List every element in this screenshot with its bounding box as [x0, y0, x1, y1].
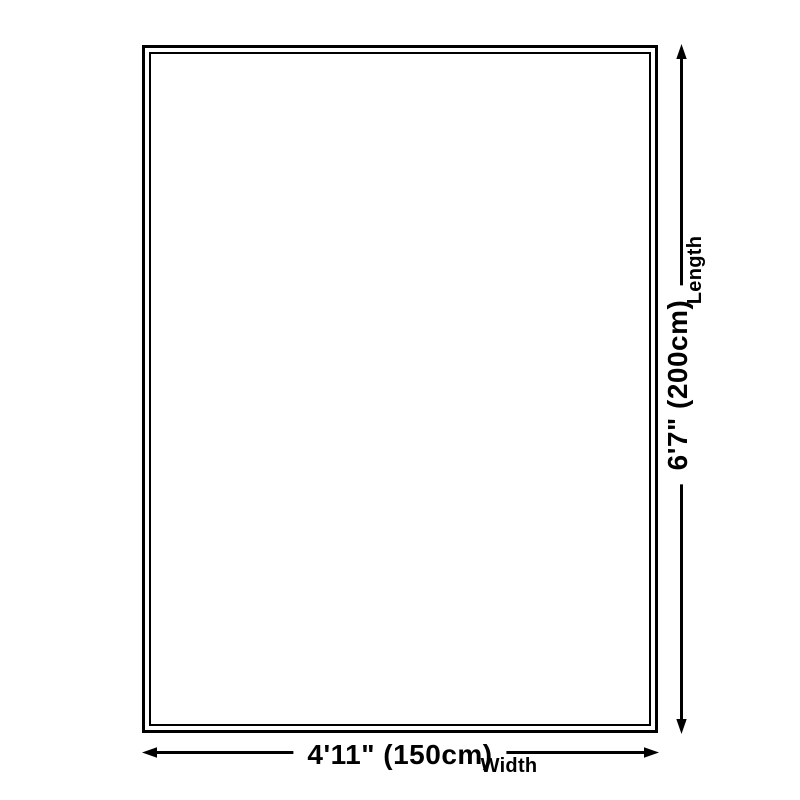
product-outline-outer [142, 45, 658, 733]
width-label: Width [481, 756, 538, 776]
length-value: 6'7" (200cm) [662, 286, 694, 485]
length-label: Length [685, 236, 705, 304]
product-outline-inner [149, 52, 651, 726]
dimension-diagram: 6'7" (200cm) Length 4'11" (150cm) Width [0, 0, 800, 800]
width-value: 4'11" (150cm) [293, 739, 506, 771]
